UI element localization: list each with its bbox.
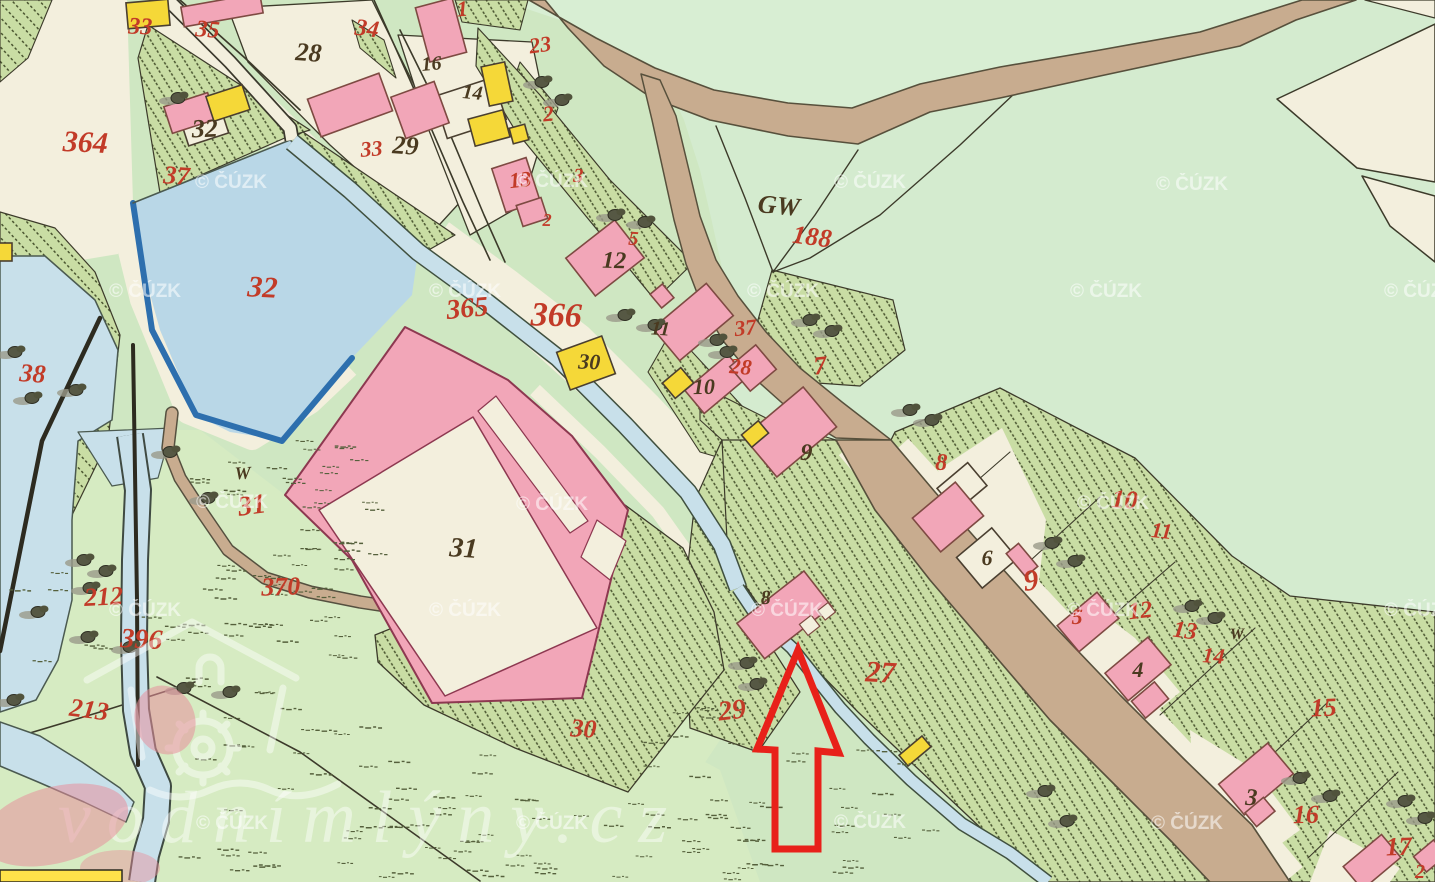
svg-text:11: 11	[650, 317, 670, 340]
svg-text:© ČÚZK: © ČÚZK	[1067, 599, 1139, 621]
svg-text:38: 38	[18, 358, 47, 389]
svg-text:37: 37	[732, 314, 759, 341]
svg-text:© ČÚZK: © ČÚZK	[751, 599, 823, 621]
svg-text:© ČÚZK: © ČÚZK	[516, 493, 588, 515]
svg-text:11: 11	[1150, 517, 1173, 544]
svg-text:© ČÚZK: © ČÚZK	[109, 599, 181, 621]
svg-text:29: 29	[715, 694, 747, 728]
svg-text:33: 33	[358, 135, 383, 162]
svg-text:10: 10	[693, 374, 715, 399]
svg-text:32: 32	[246, 270, 279, 305]
svg-text:34: 34	[352, 15, 380, 44]
svg-text:16: 16	[421, 52, 443, 76]
svg-text:© ČÚZK: © ČÚZK	[109, 280, 181, 302]
svg-text:28: 28	[728, 353, 753, 380]
svg-text:35: 35	[194, 16, 221, 44]
svg-text:© ČÚZK: © ČÚZK	[1070, 280, 1142, 302]
svg-text:370: 370	[260, 571, 301, 601]
svg-text:GW: GW	[757, 189, 803, 222]
svg-text:366: 366	[529, 296, 582, 335]
svg-text:23: 23	[526, 31, 552, 59]
svg-text:364: 364	[61, 125, 108, 160]
svg-text:3: 3	[1244, 785, 1258, 812]
svg-text:27: 27	[864, 655, 898, 690]
svg-text:© ČÚZK: © ČÚZK	[1156, 173, 1228, 195]
svg-text:© ČÚZK: © ČÚZK	[429, 599, 501, 621]
svg-text:33: 33	[127, 13, 153, 40]
svg-text:12: 12	[602, 248, 627, 275]
svg-text:2: 2	[541, 210, 551, 230]
svg-text:15: 15	[1310, 692, 1337, 722]
svg-text:6: 6	[981, 545, 992, 570]
svg-text:© ČÚZK: © ČÚZK	[834, 171, 906, 193]
svg-text:© ČÚZK: © ČÚZK	[196, 491, 268, 513]
svg-text:32: 32	[190, 114, 218, 144]
svg-text:4: 4	[1131, 657, 1143, 682]
svg-text:© ČÚZK: © ČÚZK	[429, 280, 501, 302]
svg-text:© ČÚZK: © ČÚZK	[747, 280, 819, 302]
svg-text:5: 5	[628, 228, 639, 251]
svg-text:14: 14	[462, 81, 484, 105]
svg-text:2: 2	[541, 101, 555, 127]
svg-text:W: W	[234, 463, 253, 484]
svg-text:W: W	[1230, 626, 1246, 643]
svg-text:© ČÚZK: © ČÚZK	[834, 811, 906, 833]
svg-text:© ČÚZK: © ČÚZK	[1151, 812, 1223, 834]
svg-text:16: 16	[1293, 800, 1320, 830]
svg-text:213: 213	[67, 693, 110, 727]
svg-text:© ČÚZK: © ČÚZK	[1384, 599, 1435, 621]
svg-text:31: 31	[448, 532, 479, 565]
svg-text:14: 14	[1202, 642, 1226, 669]
svg-text:vodnímlýny.cz: vodnímlýny.cz	[58, 777, 683, 859]
svg-text:13: 13	[1171, 617, 1198, 646]
svg-text:28: 28	[294, 37, 323, 68]
svg-text:30: 30	[577, 348, 601, 374]
svg-text:30: 30	[569, 713, 598, 744]
svg-text:2: 2	[1414, 861, 1425, 882]
svg-text:188: 188	[791, 220, 833, 254]
svg-text:9: 9	[800, 440, 813, 467]
svg-text:© ČÚZK: © ČÚZK	[1077, 492, 1149, 514]
svg-text:© ČÚZK: © ČÚZK	[195, 171, 267, 193]
svg-text:© ČÚZK: © ČÚZK	[1384, 280, 1435, 302]
svg-text:8: 8	[935, 450, 948, 476]
svg-text:29: 29	[391, 130, 420, 161]
svg-text:37: 37	[162, 160, 192, 191]
svg-text:17: 17	[1385, 832, 1413, 862]
svg-text:1: 1	[456, 0, 469, 21]
svg-text:© ČÚZK: © ČÚZK	[516, 170, 588, 192]
